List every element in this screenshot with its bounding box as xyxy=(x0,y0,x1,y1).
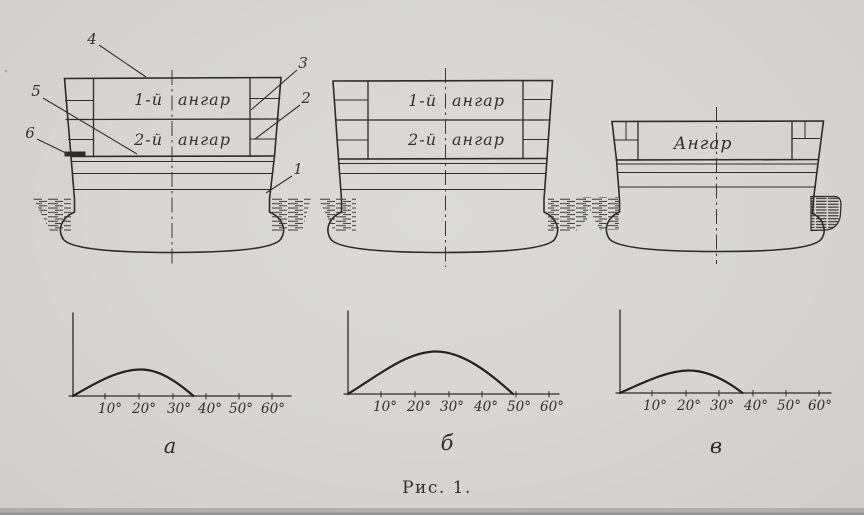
stability-curve-b xyxy=(348,352,513,395)
leader-line-1 xyxy=(266,176,292,193)
side-bulge-hatched-v xyxy=(811,197,841,231)
callout-3: 3 xyxy=(298,54,308,72)
hull-outline-v xyxy=(606,160,824,252)
stability-plot-b: 10° 20° 30° 40° 50° 60° б xyxy=(344,311,564,455)
hangar1-number-b: 1-й xyxy=(408,91,437,110)
tick-label: 60° xyxy=(540,399,564,415)
tick-label: 40° xyxy=(473,399,498,415)
stability-curve-a xyxy=(73,370,194,397)
panel-label-v: в xyxy=(710,434,722,458)
tick-label: 50° xyxy=(229,401,253,417)
tick-label: 20° xyxy=(131,401,156,417)
tick-label: 30° xyxy=(167,401,191,417)
stability-curve-v xyxy=(620,371,743,394)
leader-line-6 xyxy=(37,139,70,155)
leader-line-3 xyxy=(251,70,297,110)
hangar1-word-a: ангар xyxy=(178,90,231,109)
callout-2: 2 xyxy=(300,89,311,107)
water-hatching-b-left xyxy=(318,198,356,231)
leader-line-5 xyxy=(43,98,137,154)
tick-label: 10° xyxy=(98,401,122,417)
stability-plot-v: 10° 20° 30° 40° 50° 60° в xyxy=(616,310,832,458)
water-hatching-b-right xyxy=(548,198,588,231)
hangar-word-v: Ангар xyxy=(673,134,733,154)
tick-label: 40° xyxy=(743,398,768,414)
tick-label: 20° xyxy=(676,398,701,414)
tick-label: 10° xyxy=(373,399,397,415)
water-hatching-v-left xyxy=(583,197,619,230)
callout-4: 4 xyxy=(86,30,97,48)
callout-5: 5 xyxy=(31,82,41,100)
callout-1: 1 xyxy=(293,160,303,178)
leader-line-4 xyxy=(99,45,146,77)
superstructure-a xyxy=(65,78,282,157)
tick-label: 10° xyxy=(643,398,667,414)
hangar2-number-a: 2-й xyxy=(133,130,163,149)
hangar1-number-a: 1-й xyxy=(134,90,163,109)
tick-label: 30° xyxy=(710,398,734,414)
ship-section-b: 1-й ангар 2-й ангар xyxy=(318,68,588,267)
water-hatching-a-left xyxy=(33,198,71,231)
hangar-deck-divider-a xyxy=(66,119,279,120)
ship-section-a: 1-й ангар 2-й ангар 4 3 2 5 6 1 xyxy=(25,30,311,266)
hangar2-word-b: ангар xyxy=(452,130,505,149)
hangar1-word-b: ангар xyxy=(452,91,505,110)
callout-6: 6 xyxy=(25,124,35,142)
hull-deck-lines-b xyxy=(339,164,547,190)
tick-label: 60° xyxy=(261,401,285,417)
figure-canvas: 1-й ангар 2-й ангар 4 3 2 5 6 1 1-й анга… xyxy=(0,0,864,515)
hangar2-number-b: 2-й xyxy=(407,130,437,149)
panel-label-b: б xyxy=(441,431,454,455)
scanned-figure-page: 1-й ангар 2-й ангар 4 3 2 5 6 1 1-й анга… xyxy=(0,0,864,515)
hull-deck-lines-a xyxy=(72,162,275,190)
water-hatching-a-right xyxy=(272,198,311,231)
tick-label: 20° xyxy=(406,399,431,415)
stability-plot-a: 10° 20° 30° 40° 50° 60° а xyxy=(69,313,291,458)
hangar2-word-a: ангар xyxy=(178,130,231,149)
scan-speck xyxy=(5,70,8,73)
tick-label: 50° xyxy=(777,398,801,414)
tick-label: 30° xyxy=(440,399,464,415)
tick-label: 60° xyxy=(808,398,832,414)
panel-label-a: а xyxy=(164,434,177,458)
ship-section-v: Ангар xyxy=(583,107,841,264)
tick-label: 40° xyxy=(197,401,222,417)
tick-label: 50° xyxy=(507,399,531,415)
figure-caption: Рис. 1. xyxy=(402,478,472,498)
hull-deck-lines-v xyxy=(618,164,818,187)
